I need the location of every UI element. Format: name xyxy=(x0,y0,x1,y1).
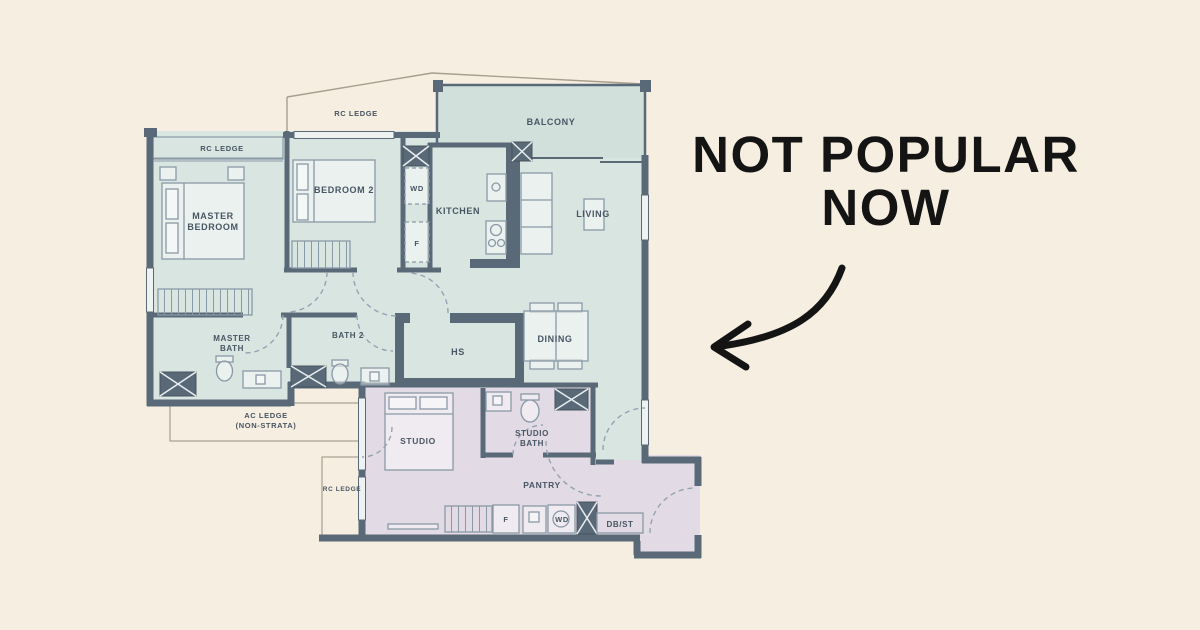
window xyxy=(147,268,154,312)
sink-icon xyxy=(361,368,389,385)
label-f-pantry: F xyxy=(503,515,508,524)
label-f-kitchen: F xyxy=(414,239,419,248)
sofa-icon xyxy=(521,173,552,254)
label-pantry: PANTRY xyxy=(523,480,561,490)
label-master-bath: BATH xyxy=(220,344,244,353)
label-wd-kitchen: WD xyxy=(410,184,424,193)
window xyxy=(642,400,649,445)
label-master-bedroom: MASTER xyxy=(192,211,234,221)
shaft-icon xyxy=(577,502,597,534)
label-bedroom2: BEDROOM 2 xyxy=(314,185,374,195)
pillar xyxy=(144,128,157,137)
floorplan-social-card: RC LEDGE RC LEDGE BALCONY MASTER BEDROOM… xyxy=(0,0,1200,630)
shaft-icon xyxy=(160,372,196,396)
bench-icon xyxy=(388,524,438,529)
nightstand-icon xyxy=(228,167,244,180)
sink-icon xyxy=(243,371,281,388)
label-ac-ledge: AC LEDGE xyxy=(244,411,288,420)
label-studio-bath: BATH xyxy=(520,439,544,448)
sink-icon xyxy=(523,506,546,533)
label-rc-ledge-master: RC LEDGE xyxy=(200,144,244,153)
kitchen-wall-flange xyxy=(470,259,518,268)
toilet-icon xyxy=(521,394,539,422)
annotation-text-line2: NOW xyxy=(821,179,950,236)
toilet-icon xyxy=(332,360,348,384)
bed-icon xyxy=(385,393,453,470)
label-living: LIVING xyxy=(576,209,610,219)
label-wd-pantry: WD xyxy=(555,515,569,524)
kitchen-wall-vertical xyxy=(506,145,520,268)
annotation-text-line1: NOT POPULAR xyxy=(692,126,1080,183)
label-kitchen: KITCHEN xyxy=(436,206,480,216)
sink-icon xyxy=(486,392,511,411)
label-rc-ledge-lower: RC LEDGE xyxy=(323,486,361,493)
label-bath2: BATH 2 xyxy=(332,331,364,340)
stove-icon xyxy=(486,221,506,254)
label-studio-bath: STUDIO xyxy=(515,429,549,438)
label-rc-ledge-outer: RC LEDGE xyxy=(334,109,378,118)
hs-door-opening xyxy=(410,306,450,325)
pillar xyxy=(433,80,443,92)
label-master-bath: MASTER xyxy=(213,334,250,343)
counter-icon xyxy=(445,506,492,532)
label-dining: DINING xyxy=(537,334,572,344)
shaft-icon xyxy=(291,366,326,387)
window xyxy=(642,195,649,240)
label-balcony: BALCONY xyxy=(527,117,576,127)
pillar xyxy=(640,80,651,92)
label-studio: STUDIO xyxy=(400,436,436,446)
window xyxy=(294,132,394,139)
wardrobe-icon xyxy=(158,289,252,315)
label-db-st: DB/ST xyxy=(607,520,634,529)
window xyxy=(359,398,366,470)
label-master-bedroom: BEDROOM xyxy=(187,222,238,232)
floorplan-graphic: RC LEDGE RC LEDGE BALCONY MASTER BEDROOM… xyxy=(0,0,1200,630)
label-ac-ledge: (NON-STRATA) xyxy=(236,421,297,430)
nightstand-icon xyxy=(160,167,176,180)
sink-icon xyxy=(487,174,506,201)
shaft-icon xyxy=(403,146,429,166)
shaft-icon xyxy=(555,389,588,410)
label-hs: HS xyxy=(451,347,465,357)
bed-icon xyxy=(162,183,244,259)
shaft-icon xyxy=(512,142,532,161)
toilet-icon xyxy=(216,356,233,381)
window xyxy=(359,477,366,520)
wardrobe-icon xyxy=(292,241,350,268)
